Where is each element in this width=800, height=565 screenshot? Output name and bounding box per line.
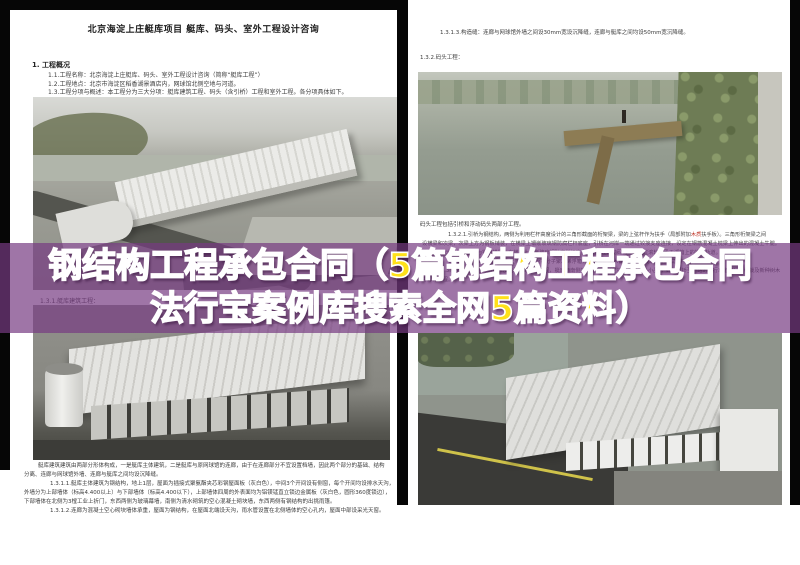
tank-shape: [45, 369, 83, 427]
page-bleed-left: [0, 470, 10, 565]
render-site-overview: [418, 333, 782, 505]
section-heading: 1. 工程概况: [32, 60, 70, 70]
document-title: 北京海淀上庄艇库项目 艇库、码头、室外工程设计咨询: [10, 22, 397, 35]
banner-title-line2: 法行宝案例库搜索全网5篇资料）: [150, 288, 650, 331]
dock-section-heading: 1.3.2.码头工程：: [420, 53, 463, 61]
ground-shape: [33, 440, 390, 460]
path-shape: [758, 72, 782, 215]
figure-shape: [622, 110, 626, 123]
body-line: 分离、连廊与网球馆外墙、连廊与艇库之间均设沉降缝。: [24, 471, 394, 480]
trees-shape: [418, 333, 514, 367]
boathouse-building-shape: [115, 129, 358, 229]
intro-paragraph: 1.1.工程名称：北京海淀上庄艇库、码头、室外工程设计咨询（简称“艇库工程”）1…: [48, 72, 347, 98]
body-text-block: 艇库建筑建筑由两部分形体构成，一是艇库主体建筑，二是艇库与原网球馆的连廊，由于在…: [24, 462, 394, 516]
dock-deck-shape: [564, 121, 683, 146]
banner-title-line1: 钢结构工程承包合同（5篇钢结构工程承包合同: [48, 245, 752, 288]
body-line: 艇库建筑建筑由两部分形体构成，一是艇库主体建筑，二是艇库与原网球馆的连廊，由于在…: [24, 462, 394, 471]
dock-caption: 码头工程包括引桥和浮动码头两部分工程。: [420, 220, 525, 228]
riverside-trees-shape: [673, 72, 763, 215]
dock-pier-shape: [587, 135, 615, 204]
body-line: 外墙分为上部墙体（标高4.400以上）与下部墙体（标高4.400以下），上部墙体…: [24, 489, 394, 498]
body-line: 1.3.1.2.连廊为混凝土空心砌块墙体承重，屋面为钢结构，在屋面北端设天沟，雨…: [24, 507, 394, 516]
body-line: 1.3.1.1.艇库主体建筑为钢结构，地上1层，屋面为插接式聚氨酯夹芯彩钢屋面板…: [24, 480, 394, 489]
construction-joint-line: 1.3.1.3.构造缝：连廊与网球馆外墙之间设30mm宽设沉降缝，连廊与艇库之间…: [440, 28, 689, 36]
body-line: 下部墙体在北侧为3樘工业上折门，东西两侧为玻璃幕墙，南侧为清水砌筑的空心混凝土砌…: [24, 498, 394, 507]
tank-top-shape: [45, 363, 83, 375]
small-building-shape: [720, 409, 778, 471]
render-dock-bridge: [418, 72, 782, 215]
para-line: 1.3.2.1.引桥为钢结构，两侧为利用栏杆高度设计的三角形截面的桁架梁，梁的上…: [422, 231, 786, 240]
apron-shape: [614, 471, 782, 505]
overlay-banner: 钢结构工程承包合同（5篇钢结构工程承包合同 法行宝案例库搜索全网5篇资料）: [0, 241, 800, 335]
